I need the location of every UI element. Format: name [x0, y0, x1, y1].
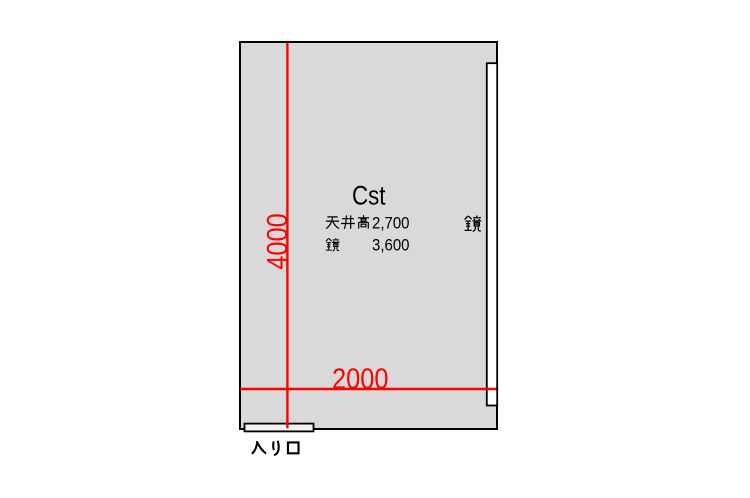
svg-text:Cst: Cst: [352, 181, 386, 211]
svg-text:2,700: 2,700: [372, 215, 410, 233]
svg-text:3,600: 3,600: [372, 237, 410, 255]
svg-text:2000: 2000: [332, 364, 389, 396]
svg-text:4000: 4000: [262, 213, 294, 270]
